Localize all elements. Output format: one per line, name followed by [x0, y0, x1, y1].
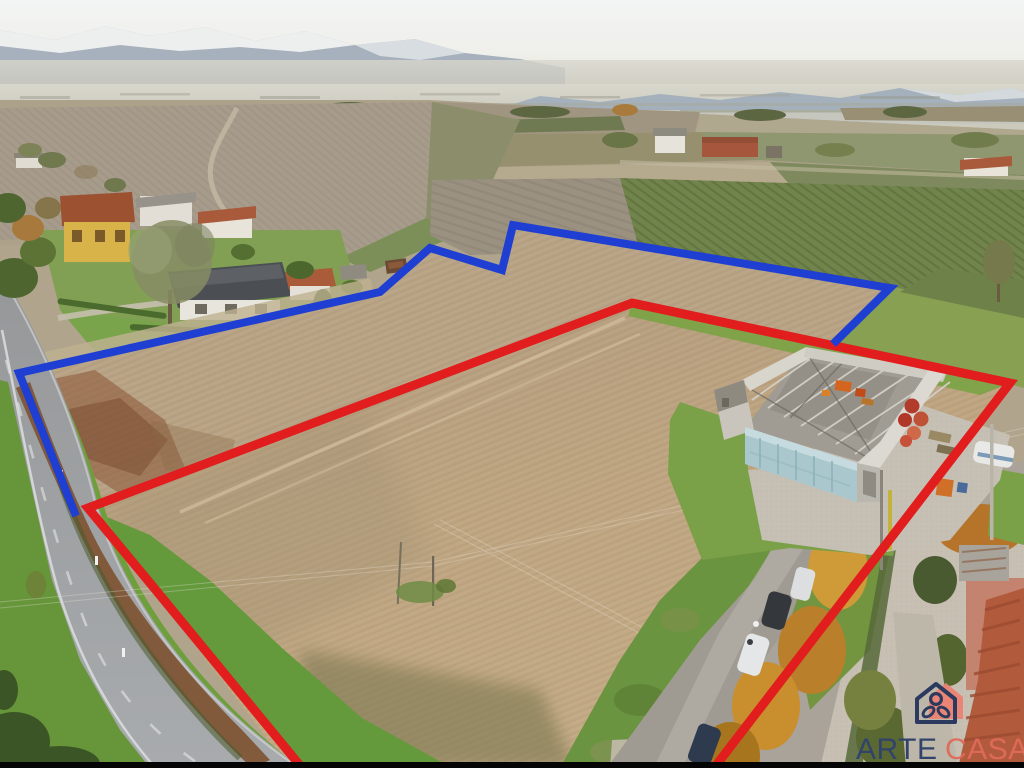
svg-text:ARTE: ARTE — [856, 733, 937, 766]
svg-text:CASA: CASA — [945, 733, 1024, 766]
